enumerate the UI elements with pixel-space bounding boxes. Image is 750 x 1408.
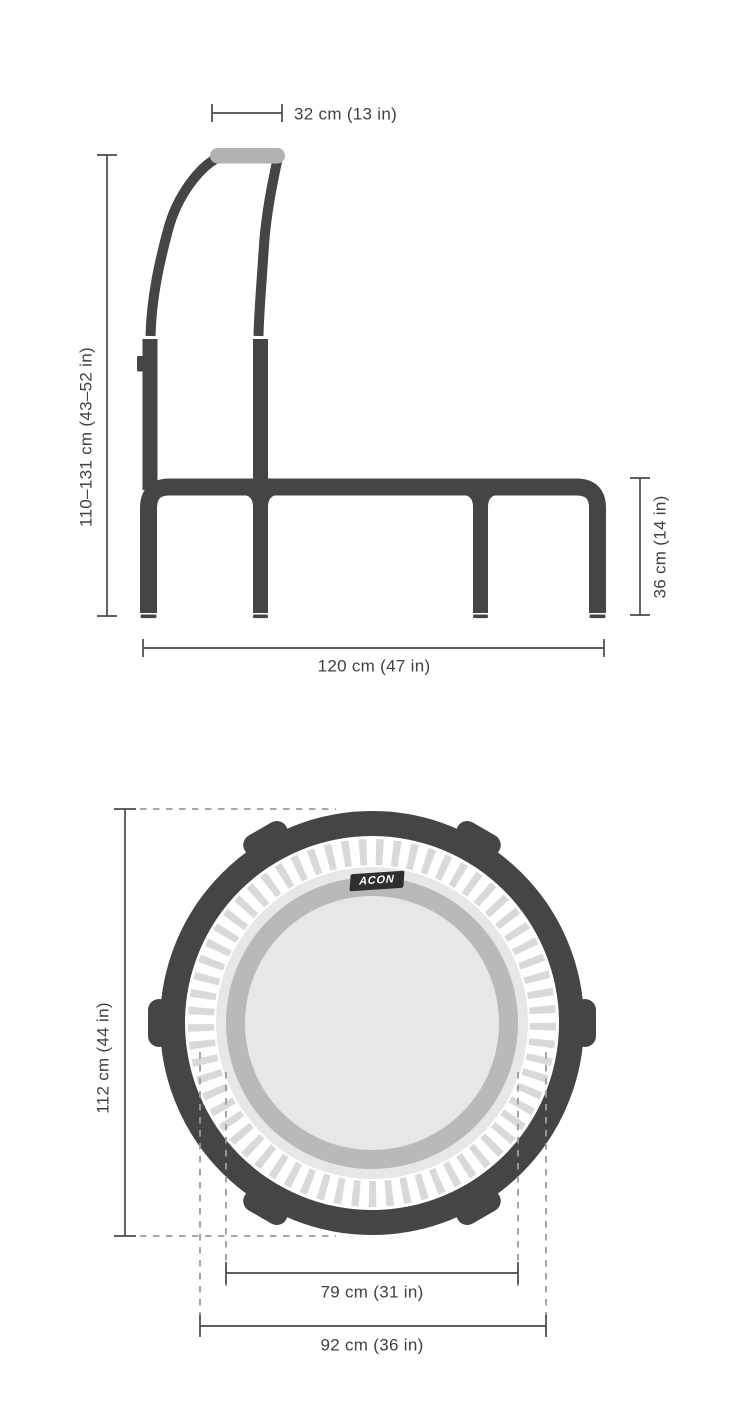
label-mat-diameter: 79 cm (31 in) [320, 1284, 423, 1301]
dim-handlebar-width [212, 104, 282, 122]
handlebar-tube-left [151, 157, 220, 336]
dim-outer-diameter [114, 809, 136, 1236]
handlebar-tube-right [259, 157, 279, 336]
side-view-trampoline [137, 148, 606, 618]
pad-surface [216, 867, 528, 1179]
label-frame-height: 36 cm (14 in) [652, 495, 669, 598]
dim-pad-diameter [200, 1315, 546, 1337]
label-frame-width: 120 cm (47 in) [318, 658, 431, 675]
label-handlebar-height: 110–131 cm (43–52 in) [78, 347, 95, 527]
dimension-diagram: 32 cm (13 in) 110–131 cm (43–52 in) 36 c… [0, 0, 750, 1408]
label-handlebar-width: 32 cm (13 in) [294, 106, 397, 123]
dim-frame-width [143, 639, 604, 657]
leg-fillets [157, 495, 590, 507]
frame-rail-and-outer-legs [149, 487, 598, 613]
label-outer-diameter: 112 cm (44 in) [95, 1002, 112, 1114]
diagram-graphics [0, 0, 750, 1408]
label-pad-diameter: 92 cm (36 in) [320, 1337, 423, 1354]
frame-inner-legs [261, 494, 481, 613]
dim-frame-height [630, 478, 650, 615]
acon-logo-text: ACON [359, 874, 395, 888]
height-adjustment-knob [137, 356, 144, 372]
dim-mat-diameter [226, 1262, 518, 1284]
handlebar-posts [150, 339, 261, 490]
dim-handlebar-height [97, 155, 117, 616]
side-view-dimension-lines [97, 104, 650, 657]
frame-feet [141, 615, 606, 619]
handlebar-tubes [151, 157, 279, 336]
handlebar-grip [210, 148, 285, 164]
